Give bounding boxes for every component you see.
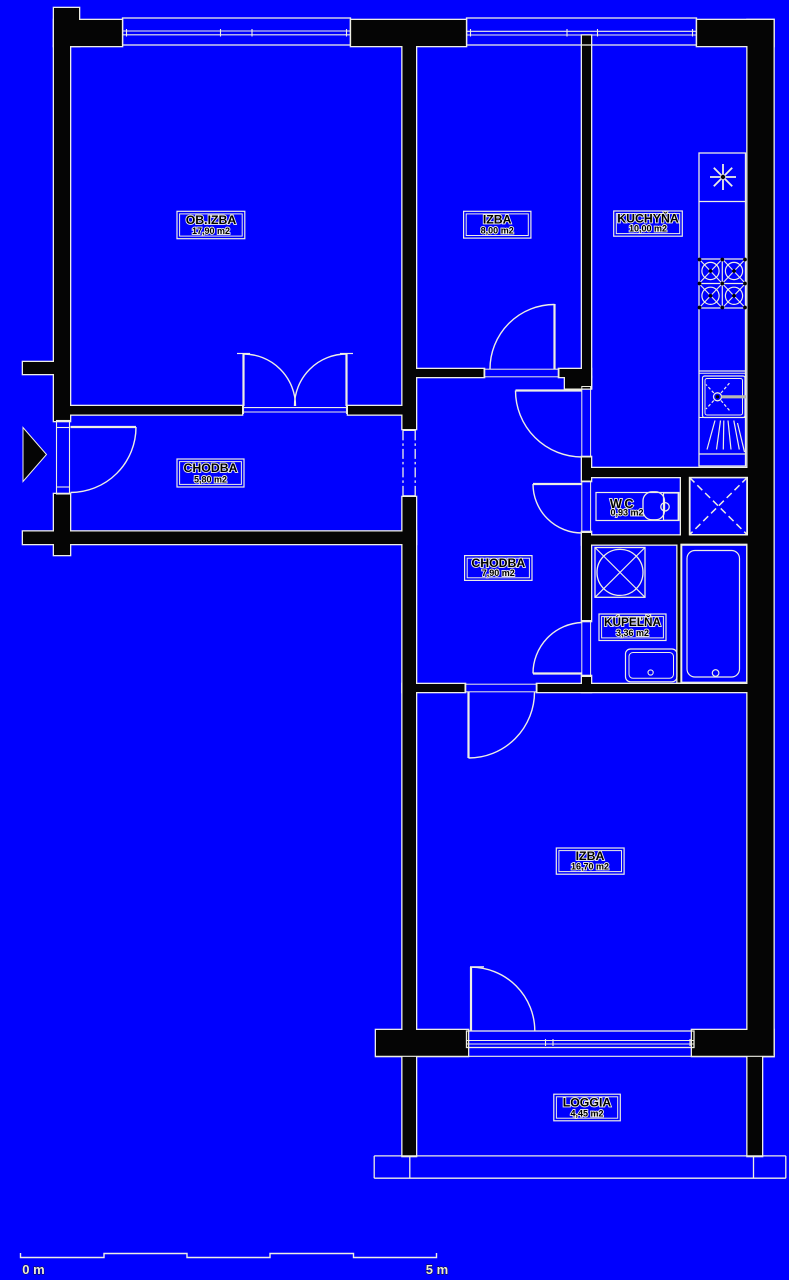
svg-text:0 m: 0 m <box>22 1262 44 1277</box>
svg-text:IZBA: IZBA <box>483 213 512 227</box>
svg-text:OB.IZBA: OB.IZBA <box>186 213 237 227</box>
svg-text:CHODBA: CHODBA <box>184 461 238 475</box>
svg-text:10,00 m2: 10,00 m2 <box>629 224 667 234</box>
svg-text:17,90 m2: 17,90 m2 <box>192 226 230 236</box>
svg-text:16,70 m2: 16,70 m2 <box>571 862 609 872</box>
svg-text:3,36 m2: 3,36 m2 <box>616 628 649 638</box>
svg-text:8,00 m2: 8,00 m2 <box>481 226 514 236</box>
svg-text:0,93 m2: 0,93 m2 <box>610 508 643 518</box>
svg-text:5,80 m2: 5,80 m2 <box>194 475 227 485</box>
svg-text:4,45 m2: 4,45 m2 <box>570 1108 603 1118</box>
svg-text:7,90 m2: 7,90 m2 <box>482 568 515 578</box>
svg-text:5 m: 5 m <box>426 1262 448 1277</box>
